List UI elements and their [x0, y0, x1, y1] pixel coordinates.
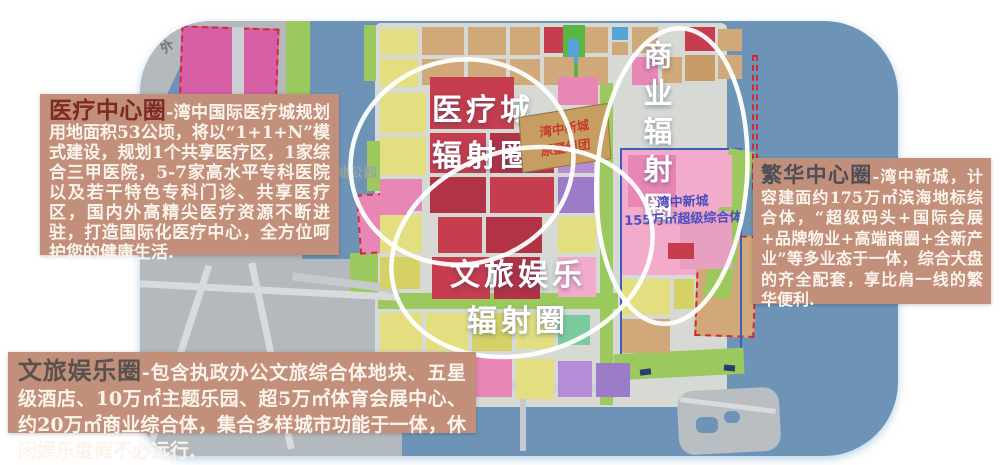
prosperity-info-box: 繁华中心圈-湾中新城，计容建面约175万㎡滨海地标综合体，“超级码头+国际会展+… [753, 158, 991, 304]
culture-info-box: 文旅娱乐圈-包含执政办公文旅综合体地块、五星级酒店、10万㎡主题乐园、超5万㎡体… [8, 352, 476, 433]
culture-circle-label: 文旅娱乐 辐射圈 [418, 253, 618, 345]
map-block [612, 27, 628, 40]
map-block [558, 361, 592, 397]
medical-info-body: -湾中国际医疗城规划用地面积53公顷，将以“1+1+N”模式建设，规划1个共享医… [49, 103, 330, 263]
map-block [468, 27, 506, 55]
map-block [622, 319, 670, 353]
map-block [430, 177, 486, 213]
map-block [438, 217, 482, 253]
map-region-lakeshore-green-1 [364, 25, 376, 81]
map-block [380, 215, 422, 253]
map-block [558, 217, 596, 253]
map-block [558, 77, 598, 105]
medical-info-box: 医疗中心圈-湾中国际医疗城规划用地面积53公顷，将以“1+1+N”模式建设，规划… [40, 94, 339, 255]
park-label: 地公园 [336, 162, 378, 181]
map-block [380, 313, 422, 351]
map-block [668, 243, 694, 259]
map-block [476, 357, 512, 397]
prosperity-info-title: 繁华中心圈 [761, 162, 873, 187]
map-block [486, 217, 542, 253]
map-block [380, 179, 422, 211]
map-block [674, 279, 694, 309]
map-region-island-pond-2 [724, 411, 740, 423]
map-block [718, 29, 742, 51]
culture-info-title: 文旅娱乐圈 [18, 356, 142, 385]
map-block [685, 55, 715, 81]
promo-map-page: 医疗城 辐射圈 商业辐射圈 文旅娱乐 辐射圈 湾中新城 原墅组团 湾中新城 15… [0, 0, 1000, 465]
medical-info-title: 医疗中心圈 [49, 97, 166, 124]
map-block [596, 363, 630, 397]
map-block [685, 27, 715, 51]
map-block [516, 359, 554, 399]
map-region-island-pond-1 [696, 417, 718, 433]
map-block [558, 177, 594, 213]
map-block [380, 29, 418, 55]
map-block [380, 257, 420, 289]
map-block [510, 59, 540, 85]
culture-circle-label-line1: 文旅娱乐 [418, 253, 618, 299]
map-block [490, 177, 554, 213]
map-block [612, 42, 628, 55]
prosperity-info-body: -湾中新城，计容建面约175万㎡滨海地标综合体，“超级码头+国际会展+品牌物业+… [761, 167, 983, 309]
super-complex-label: 湾中新城 155万㎡超级综合体 [615, 192, 750, 231]
map-block [422, 27, 464, 55]
map-block [510, 27, 540, 55]
map-region-boat-2 [724, 365, 735, 372]
map-block [718, 55, 742, 79]
culture-circle-label-line2: 辐射圈 [418, 299, 618, 345]
map-block [380, 59, 418, 87]
map-block [622, 279, 670, 315]
